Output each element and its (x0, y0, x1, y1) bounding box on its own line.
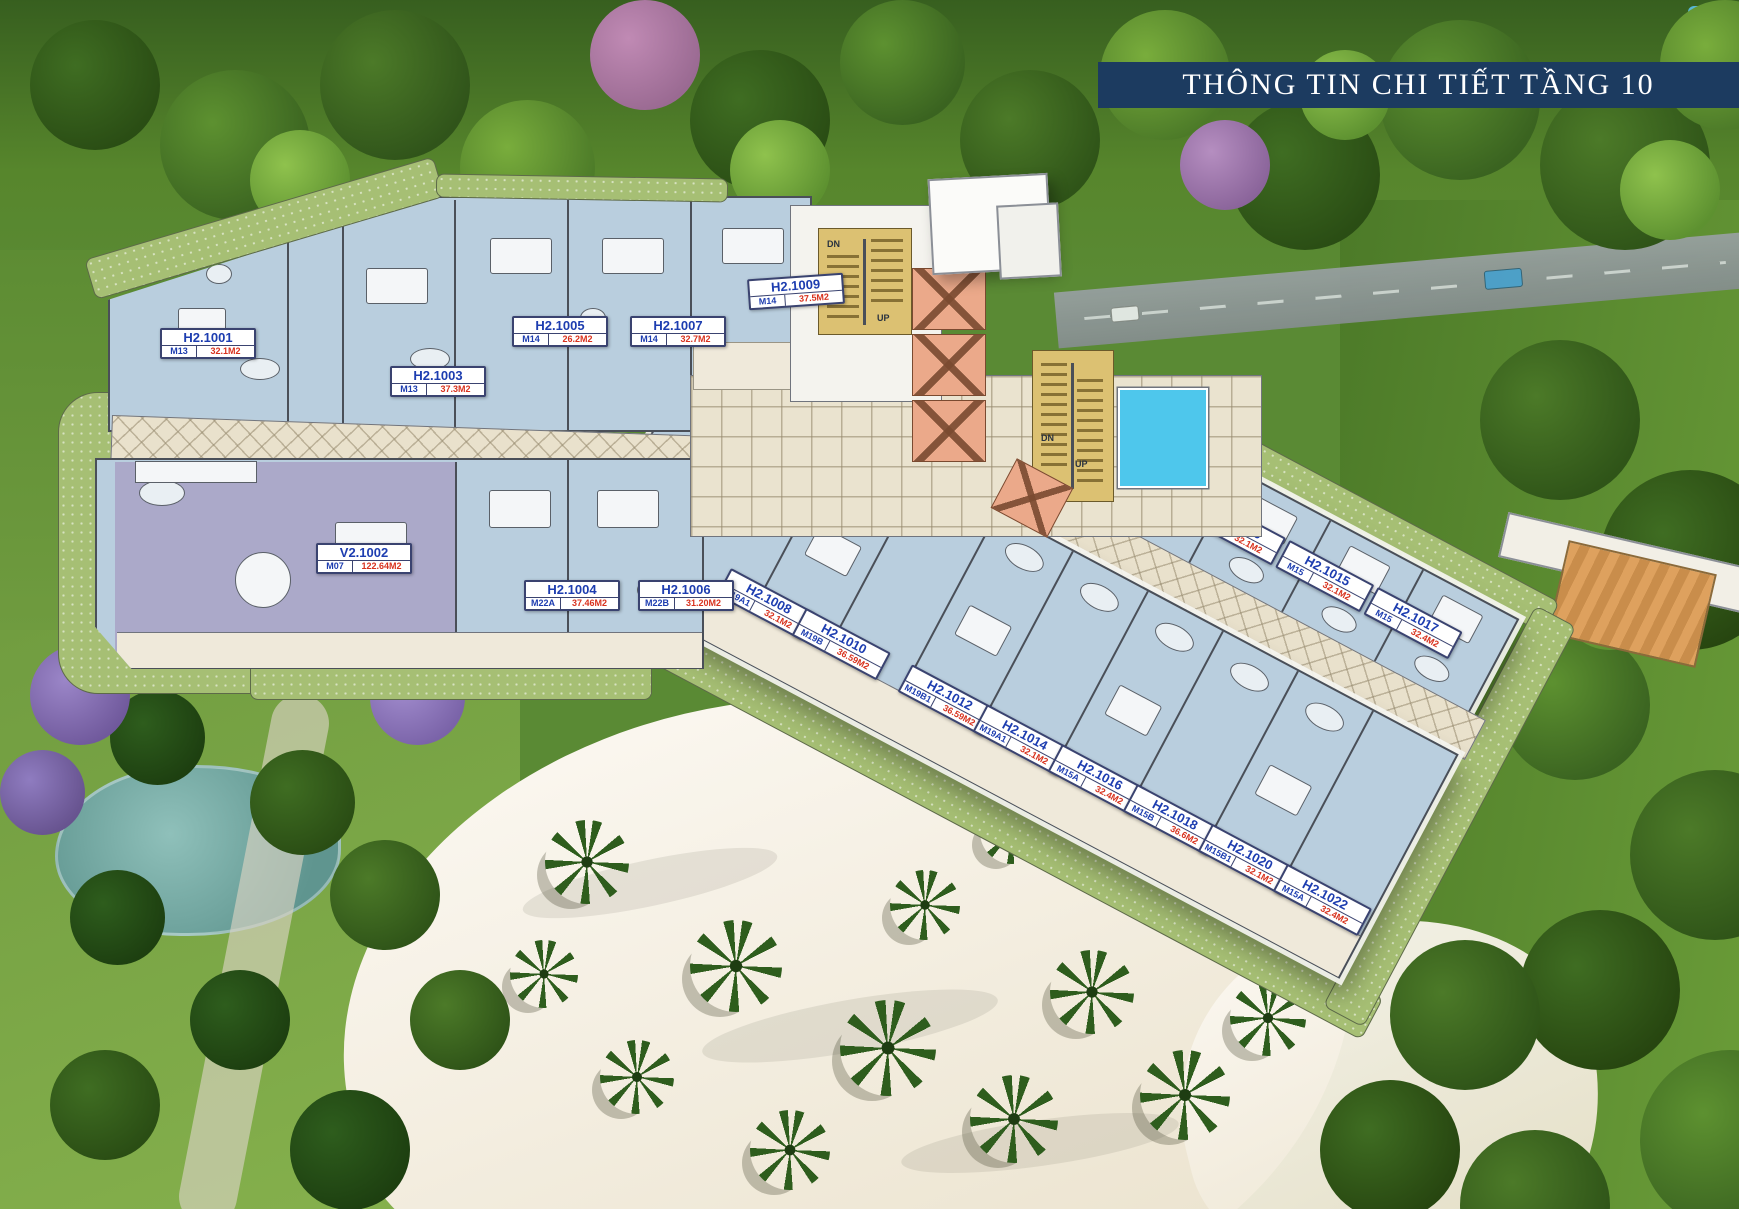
palm-tree (750, 1110, 830, 1190)
palm-tree (840, 1000, 936, 1096)
partition-wall (342, 206, 344, 430)
page-title: THÔNG TIN CHI TIẾT TẦNG 10 (1182, 68, 1654, 102)
bathtub (1075, 577, 1123, 618)
partition-wall (287, 218, 289, 430)
canopy-roof-2 (996, 202, 1062, 279)
stair-flight (1077, 379, 1103, 489)
unit-label-h2-1006[interactable]: H2.1006 M22B31.20M2 (638, 580, 734, 611)
pool-room (1118, 388, 1208, 488)
stair-dn-label: DN (1041, 433, 1054, 443)
tree (290, 1090, 410, 1209)
bed (597, 490, 659, 528)
tree (30, 20, 160, 150)
unit-area: 37.46M2 (561, 598, 618, 609)
tree (320, 10, 470, 160)
bed (1254, 764, 1312, 817)
tree (1390, 940, 1540, 1090)
unit-code: H2.1005 (514, 318, 606, 334)
bed (490, 238, 552, 274)
stair-flight (1041, 363, 1067, 473)
palm-tree (690, 920, 782, 1012)
unit-code: H2.1001 (162, 330, 254, 346)
unit-label-h2-1001[interactable]: H2.1001 M1332.1M2 (160, 328, 256, 359)
stair-rail (1071, 363, 1074, 489)
kitchen-counter (135, 461, 257, 483)
unit-area: 122.64M2 (353, 561, 410, 572)
unit-model: M13 (392, 384, 427, 395)
unit-area: 32.7M2 (667, 334, 724, 345)
car-white (1110, 305, 1139, 322)
tree (1180, 120, 1270, 210)
bathtub (1300, 697, 1348, 738)
unit-model: M07 (318, 561, 353, 572)
unit-area: 32.1M2 (197, 346, 254, 357)
bed (1104, 684, 1162, 737)
palm-tree (510, 940, 578, 1008)
floorplan-scene: H2.1011 M1532.4M2 H2.1013 M1532.1M2 H2.1… (0, 0, 1739, 1209)
tree (250, 750, 355, 855)
unit-label-v2-1002[interactable]: V2.1002 M07122.64M2 (316, 543, 412, 574)
stair-up-label: UP (1075, 459, 1088, 469)
unit-label-h2-1005[interactable]: H2.1005 M1426.2M2 (512, 316, 608, 347)
unit-area: 26.2M2 (549, 334, 606, 345)
stair-dn-label: DN (827, 239, 840, 249)
unit-label-h2-1007[interactable]: H2.1007 M1432.7M2 (630, 316, 726, 347)
unit-code: H2.1003 (392, 368, 484, 384)
tree (1620, 140, 1720, 240)
unit-area: 31.20M2 (675, 598, 732, 609)
unit-model: M22A (526, 598, 561, 609)
stair-up-label: UP (877, 313, 890, 323)
palm-tree (545, 820, 629, 904)
dining-table (235, 552, 291, 608)
palm-tree (600, 1040, 674, 1114)
tree (1480, 340, 1640, 500)
unit-model: M14 (750, 295, 786, 308)
bed (366, 268, 428, 304)
palm-tree (970, 1075, 1058, 1163)
tree (50, 1050, 160, 1160)
bathtub (1225, 657, 1273, 698)
elevator-2 (912, 334, 986, 396)
bed (722, 228, 784, 264)
unit-code: V2.1002 (318, 545, 410, 561)
unit-area: 37.3M2 (427, 384, 484, 395)
partition-wall (567, 200, 569, 430)
bed (489, 490, 551, 528)
balcony-strip (117, 632, 702, 668)
bathtub (139, 480, 185, 506)
tree (330, 840, 440, 950)
bathtub (1000, 537, 1048, 578)
tree (1520, 910, 1680, 1070)
stair-flight (871, 239, 903, 309)
unit-code: H2.1007 (632, 318, 724, 334)
terrace-left-wing-top2 (436, 173, 728, 202)
tree (410, 970, 510, 1070)
tree (1320, 1080, 1460, 1209)
unit-code: H2.1006 (640, 582, 732, 598)
unit-code: H2.1004 (526, 582, 618, 598)
bed (602, 238, 664, 274)
palm-tree (1140, 1050, 1230, 1140)
unit-label-h2-1004[interactable]: H2.1004 M22A37.46M2 (524, 580, 620, 611)
elevator-1 (912, 268, 986, 330)
unit-model: M22B (640, 598, 675, 609)
page-title-banner: THÔNG TIN CHI TIẾT TẦNG 10 (1098, 62, 1739, 108)
elevator-3 (912, 400, 986, 462)
core-lobby-patch (693, 342, 795, 390)
stair-rail (863, 239, 866, 325)
palm-tree (1050, 950, 1134, 1034)
tree (190, 970, 290, 1070)
unit-model: M13 (162, 346, 197, 357)
unit-model: M14 (632, 334, 667, 345)
truck-blue (1484, 268, 1524, 290)
palm-tree (890, 870, 960, 940)
tree (70, 870, 165, 965)
bed (954, 604, 1012, 657)
tree (840, 0, 965, 125)
bathtub (240, 358, 280, 380)
tree (590, 0, 700, 110)
bathtub (1150, 617, 1198, 658)
tree (0, 750, 85, 835)
unit-label-h2-1003[interactable]: H2.1003 M1337.3M2 (390, 366, 486, 397)
unit-model: M14 (514, 334, 549, 345)
